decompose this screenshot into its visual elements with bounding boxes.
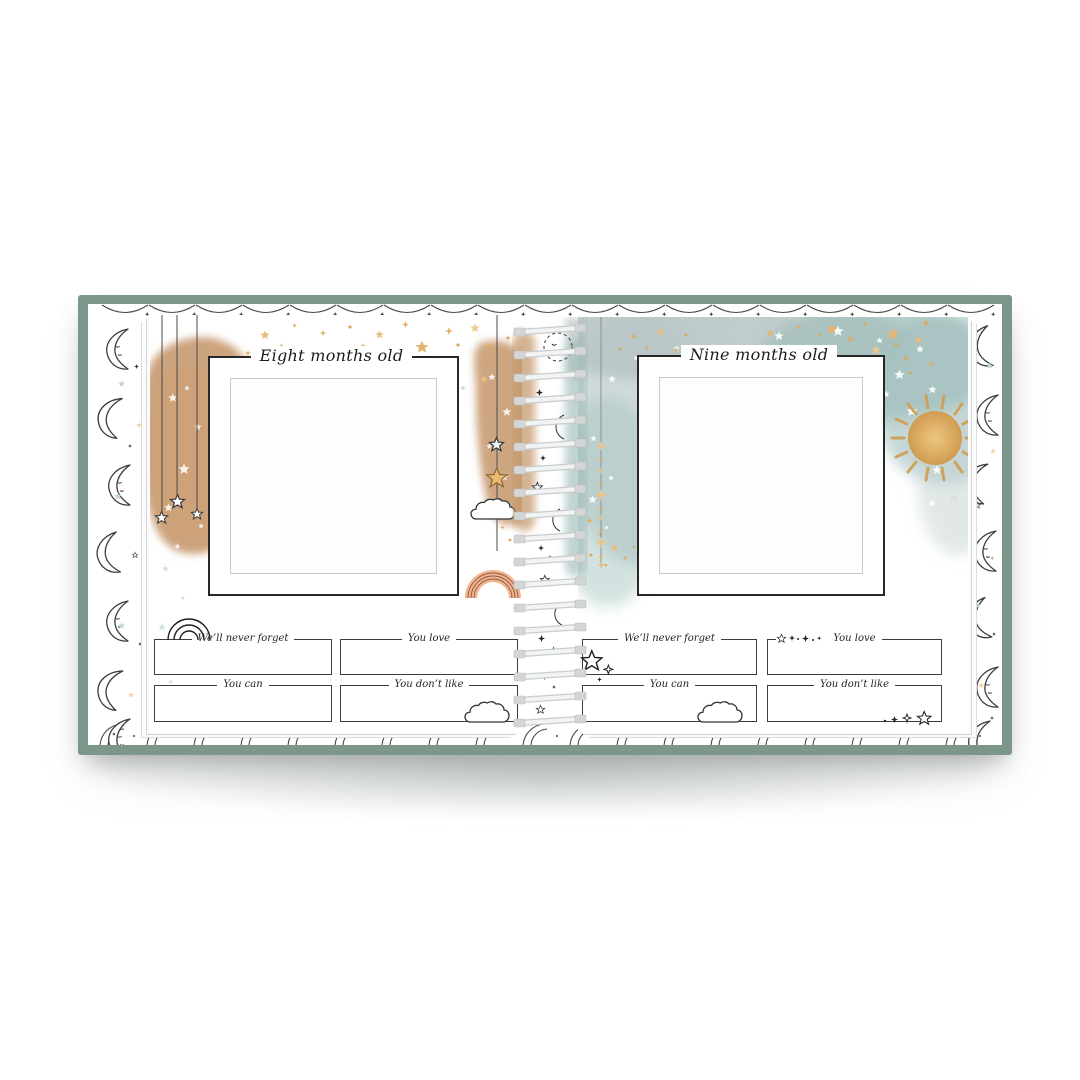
star-doodle-icons [881,710,939,729]
spiral-binding [512,317,588,733]
field-box-you-love: You love [340,639,518,675]
field-box-dont-like: You don’t like [340,685,518,722]
rainbow-doodle-icon [165,614,213,641]
page-title: Nine months old [637,345,881,364]
cloud-doodle-icon [464,700,511,724]
cloud-doodle-icon [697,700,744,724]
photo-frame [637,355,885,596]
photo-placeholder [659,377,863,574]
field-box-you-love: You love [767,639,942,675]
field-label: You can [155,679,331,690]
field-box-dont-like: You don’t like [767,685,942,722]
photo-placeholder [230,378,437,574]
field-label: You can [583,679,756,690]
left-moon-band [95,329,145,745]
field-label: You don’t like [768,679,941,690]
page-title: Eight months old [208,346,455,365]
field-box-you-can: You can [154,685,332,722]
field-box-never-forget: We’ll never forget [154,639,332,675]
sparkle-doodle-icons [776,633,828,646]
right-page: Nine months old We’ll never forget You l… [578,317,968,733]
field-box-you-can: You can [582,685,757,722]
memory-book: Eight months old We’ll never forget You … [78,295,1012,755]
field-box-never-forget: We’ll never forget [582,639,757,675]
photo-frame [208,356,459,596]
field-label: You love [341,633,517,644]
product-photo-stage: Eight months old We’ll never forget You … [0,0,1080,1080]
endpaper: Eight months old We’ll never forget You … [88,304,1002,745]
left-page: Eight months old We’ll never forget You … [150,315,522,733]
field-label: We’ll never forget [583,633,756,644]
field-label: You don’t like [341,679,517,690]
